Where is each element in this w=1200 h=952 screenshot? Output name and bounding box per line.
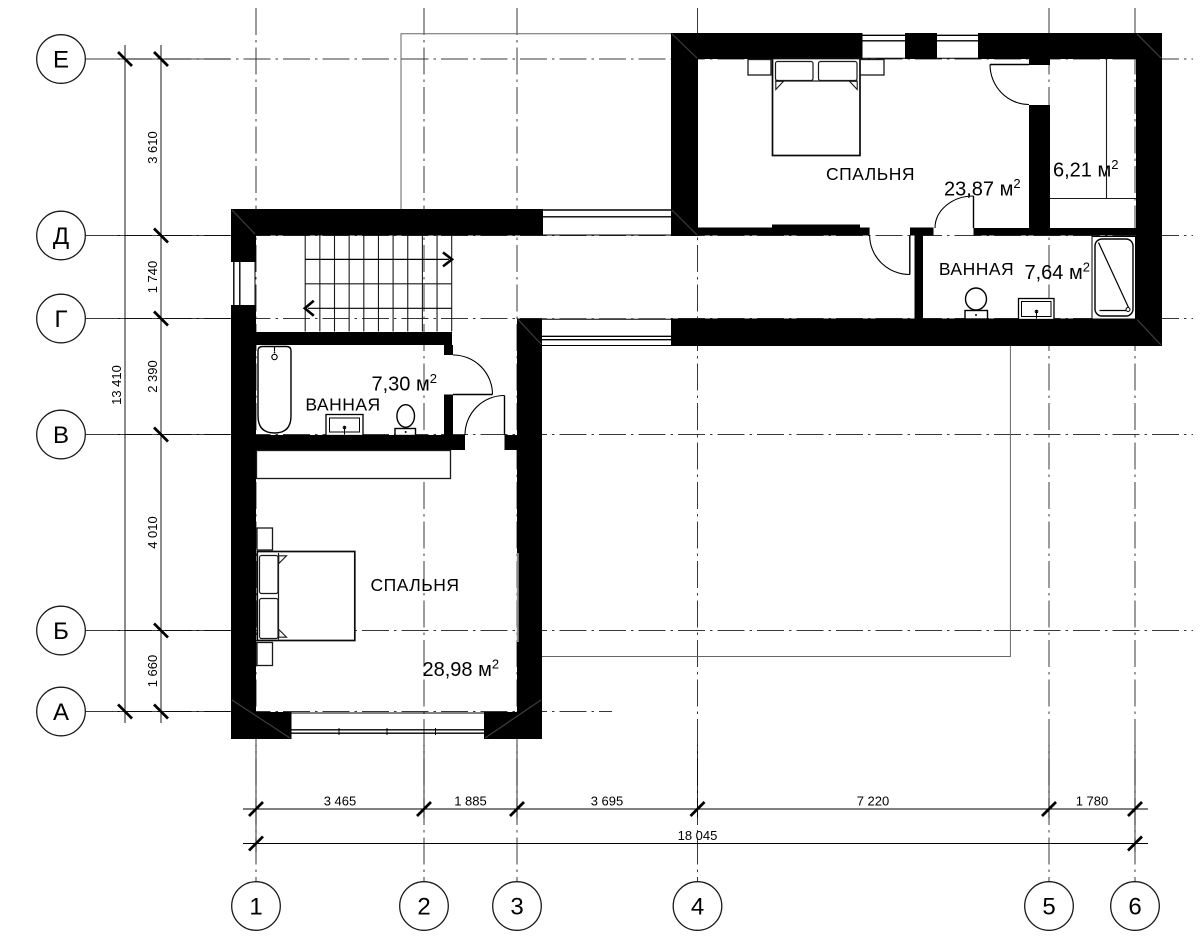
svg-text:3 695: 3 695 xyxy=(591,794,624,809)
svg-text:Г: Г xyxy=(55,306,68,333)
svg-text:28,98 м2: 28,98 м2 xyxy=(423,656,500,681)
svg-text:18 045: 18 045 xyxy=(678,828,718,843)
svg-text:2: 2 xyxy=(417,894,430,921)
svg-text:3 465: 3 465 xyxy=(324,794,357,809)
svg-text:1 885: 1 885 xyxy=(454,794,487,809)
svg-text:В: В xyxy=(53,422,69,449)
svg-text:Е: Е xyxy=(53,47,69,74)
svg-text:4 010: 4 010 xyxy=(145,516,160,549)
svg-text:7,30 м2: 7,30 м2 xyxy=(372,371,437,396)
svg-text:СПАЛЬНЯ: СПАЛЬНЯ xyxy=(826,164,915,184)
svg-text:6,21 м2: 6,21 м2 xyxy=(1053,157,1118,182)
svg-text:1: 1 xyxy=(249,894,262,921)
svg-text:13 410: 13 410 xyxy=(109,365,124,405)
svg-text:5: 5 xyxy=(1042,894,1055,921)
svg-text:Д: Д xyxy=(53,223,69,250)
svg-text:4: 4 xyxy=(691,894,704,921)
svg-text:7 220: 7 220 xyxy=(857,794,890,809)
svg-text:1 740: 1 740 xyxy=(145,261,160,294)
svg-text:6: 6 xyxy=(1128,894,1141,921)
svg-text:Б: Б xyxy=(53,618,69,645)
svg-text:23,87 м2: 23,87 м2 xyxy=(944,176,1021,201)
svg-text:7,64 м2: 7,64 м2 xyxy=(1025,260,1090,285)
svg-text:А: А xyxy=(53,699,69,726)
svg-text:1 660: 1 660 xyxy=(145,655,160,688)
svg-text:3 610: 3 610 xyxy=(145,131,160,164)
svg-text:ВАННАЯ: ВАННАЯ xyxy=(939,259,1014,279)
svg-text:3: 3 xyxy=(510,894,523,921)
svg-text:1 780: 1 780 xyxy=(1076,794,1109,809)
svg-text:СПАЛЬНЯ: СПАЛЬНЯ xyxy=(370,575,459,595)
svg-text:2 390: 2 390 xyxy=(145,360,160,393)
svg-text:ВАННАЯ: ВАННАЯ xyxy=(305,395,380,415)
